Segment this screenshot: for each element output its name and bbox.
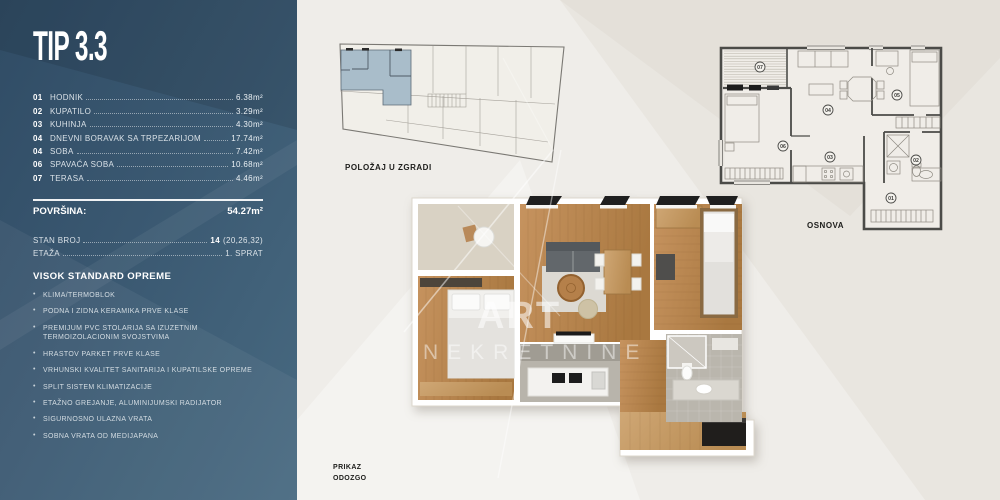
room-name: KUHINJA bbox=[50, 120, 87, 129]
room-row: 01 HODNIK 6.38m² bbox=[33, 89, 263, 102]
room-row: 04 DNEVNI BORAVAK SA TRPEZARIJOM 17.74m² bbox=[33, 129, 263, 142]
room-number: 02 bbox=[33, 107, 50, 116]
dotted-leader bbox=[83, 242, 207, 243]
apartment-type-title: TIP 3.3 bbox=[33, 22, 107, 70]
room-number: 04 bbox=[33, 134, 50, 143]
room-list: 01 HODNIK 6.38m² 02 KUPATILO 3.29m² 03 K… bbox=[33, 89, 263, 183]
brochure-page: TIP 3.3 01 HODNIK 6.38m² 02 KUPATILO 3.2… bbox=[0, 0, 1000, 500]
room-number: 03 bbox=[33, 120, 50, 129]
features-list: KLIMA/TERMOBLOK PODNA I ZIDNA KERAMIKA P… bbox=[33, 291, 269, 448]
floor-value: 1. SPRAT bbox=[225, 249, 263, 258]
room-row: 06 SPAVAĆA SOBA 10.68m² bbox=[33, 156, 263, 169]
total-area-value: 54.27m² bbox=[227, 206, 263, 217]
feature-item: VRHUNSKI KVALITET SANITARIJA I KUPATILSK… bbox=[33, 366, 269, 375]
room-marker-06: 06 bbox=[780, 144, 786, 150]
unit-number-value: 14 bbox=[210, 236, 220, 245]
unit-number-row: STAN BROJ 14 (20,26,32) bbox=[33, 232, 263, 245]
room-marker-01: 01 bbox=[888, 196, 894, 202]
floor-row: ETAŽA 1. SPRAT bbox=[33, 245, 263, 258]
room-name: KUPATILO bbox=[50, 107, 91, 116]
building-position-plan bbox=[338, 36, 570, 168]
room-row: 03 KUHINJA 4.30m² bbox=[33, 116, 263, 129]
render-terrace bbox=[418, 204, 514, 270]
total-area-label: POVRŠINA: bbox=[33, 206, 86, 217]
divider-line bbox=[33, 199, 263, 201]
room-marker-03: 03 bbox=[827, 155, 833, 161]
dotted-leader bbox=[87, 180, 233, 181]
feature-item: ETAŽNO GREJANJE, ALUMINIJUMSKI RADIJATOR bbox=[33, 399, 269, 408]
feature-item: PODNA I ZIDNA KERAMIKA PRVE KLASE bbox=[33, 307, 269, 316]
caption-prikaz-line1: PRIKAZ bbox=[333, 463, 367, 474]
room-marker-04: 04 bbox=[825, 108, 831, 114]
room-name: SOBA bbox=[50, 147, 74, 156]
dotted-leader bbox=[94, 113, 233, 114]
room-area: 6.38m² bbox=[236, 93, 263, 102]
room-row: 02 KUPATILO 3.29m² bbox=[33, 102, 263, 115]
room-number: 06 bbox=[33, 160, 50, 169]
room-area: 7.42m² bbox=[236, 147, 263, 156]
room-marker-07: 07 bbox=[757, 65, 763, 71]
room-area: 17.74m² bbox=[231, 134, 263, 143]
feature-item: HRASTOV PARKET PRVE KLASE bbox=[33, 350, 269, 359]
dotted-leader bbox=[77, 153, 233, 154]
room-marker-05: 05 bbox=[894, 93, 900, 99]
floor-label: ETAŽA bbox=[33, 249, 60, 258]
dotted-leader bbox=[86, 99, 233, 100]
room-area: 3.29m² bbox=[236, 107, 263, 116]
feature-item: SPLIT SISTEM KLIMATIZACIJE bbox=[33, 383, 269, 392]
apartment-3d-render bbox=[404, 192, 764, 466]
dotted-leader bbox=[204, 140, 228, 141]
unit-number-label: STAN BROJ bbox=[33, 236, 80, 245]
room-area: 4.30m² bbox=[236, 120, 263, 129]
caption-prikaz-line2: ODOZGO bbox=[333, 474, 367, 485]
dotted-leader bbox=[117, 166, 228, 167]
feature-item: SIGURNOSNO ULAZNA VRATA bbox=[33, 415, 269, 424]
room-row: 07 TERASA 4.46m² bbox=[33, 169, 263, 182]
room-name: DNEVNI BORAVAK SA TRPEZARIJOM bbox=[50, 134, 201, 143]
room-name: HODNIK bbox=[50, 93, 83, 102]
caption-position: POLOŽAJ U ZGRADI bbox=[345, 163, 432, 172]
room-number: 07 bbox=[33, 174, 50, 183]
caption-osnova: OSNOVA bbox=[807, 221, 844, 230]
info-panel: TIP 3.3 01 HODNIK 6.38m² 02 KUPATILO 3.2… bbox=[0, 0, 297, 500]
room-name: TERASA bbox=[50, 174, 84, 183]
watermark-brand-line1: ART bbox=[477, 295, 561, 338]
feature-item: PREMIJUM PVC STOLARIJA SA IZUZETNIM TERM… bbox=[33, 324, 269, 342]
caption-prikaz: PRIKAZ ODOZGO bbox=[333, 463, 367, 484]
unit-number-extra: (20,26,32) bbox=[223, 236, 263, 245]
features-title: VISOK STANDARD OPREME bbox=[33, 271, 171, 282]
room-row: 04 SOBA 7.42m² bbox=[33, 143, 263, 156]
room-marker-02: 02 bbox=[913, 158, 919, 164]
room-number: 04 bbox=[33, 147, 50, 156]
unit-info-block: STAN BROJ 14 (20,26,32) ETAŽA 1. SPRAT bbox=[33, 232, 263, 258]
room-area: 10.68m² bbox=[231, 160, 263, 169]
room-area: 4.46m² bbox=[236, 174, 263, 183]
feature-item: KLIMA/TERMOBLOK bbox=[33, 291, 269, 300]
room-number: 01 bbox=[33, 93, 50, 102]
watermark-brand-line2: NEKRETNINE bbox=[423, 341, 648, 365]
total-area-row: POVRŠINA: 54.27m² bbox=[33, 206, 263, 217]
render-small-bedroom bbox=[654, 204, 742, 330]
feature-item: SOBNA VRATA OD MEDIJAPANA bbox=[33, 432, 269, 441]
room-name: SPAVAĆA SOBA bbox=[50, 160, 114, 169]
dotted-leader bbox=[63, 255, 222, 256]
render-bathroom bbox=[666, 334, 742, 422]
dotted-leader bbox=[90, 126, 233, 127]
